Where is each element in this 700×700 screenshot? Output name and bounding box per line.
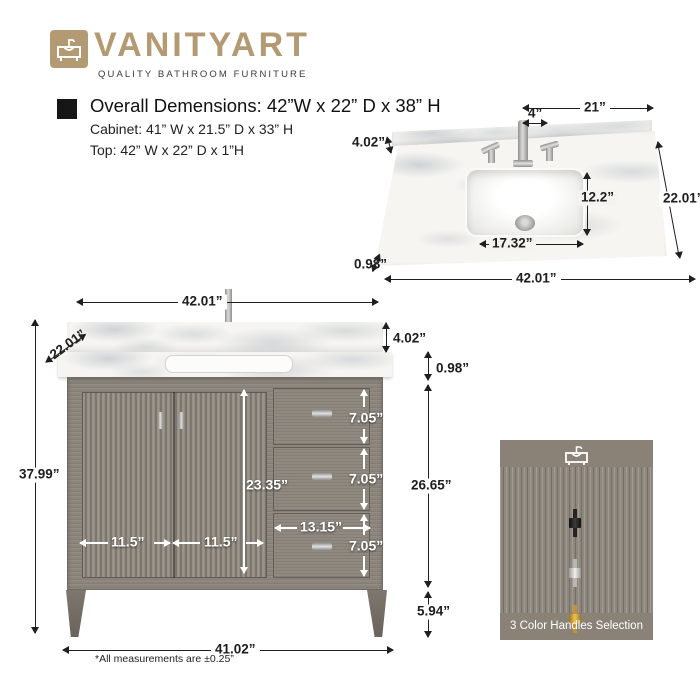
door-gap [173, 392, 175, 578]
handle-option-black [569, 509, 581, 537]
dim-label-half-width: 21” [580, 101, 610, 116]
brand-name: VANITYART [94, 26, 310, 65]
dim-label-drawer3: 7.05” [349, 538, 383, 553]
dim-line-door-right-a [173, 542, 200, 544]
dim-line-drawer2-a [363, 449, 365, 469]
product-dimension-sheet: VANITYART QUALITY BATHROOM FURNITURE Ove… [0, 0, 700, 700]
dim-line-drawer1-b [363, 429, 365, 443]
dim-label-door-right: 11.5” [204, 534, 237, 549]
dim-label-drawer-width: 13.15” [300, 519, 342, 534]
faucet-spout-base [513, 160, 533, 167]
handle-option-chrome [569, 559, 581, 587]
dim-line-drawer-width-b [343, 527, 370, 529]
vanity-icon [50, 30, 88, 68]
dim-label-sink-depth: 12.2” [578, 191, 617, 206]
dim-line-drawer2-b [363, 489, 365, 509]
dim-label-door-opening: 23.35” [246, 477, 288, 492]
dim-label-splash-height: 4.02” [352, 136, 385, 151]
brand-logo-icon [50, 30, 88, 68]
front-backsplash [67, 322, 383, 352]
handles-selection-panel: 3 Color Handles Selection [500, 440, 653, 640]
spec-bullet-square [57, 99, 77, 119]
front-sink-outline [165, 355, 293, 373]
dim-label-body-height: 26.65” [407, 479, 456, 494]
dim-label-counter-width: 42.01” [512, 272, 561, 287]
vanity-front-view: 42.01” 22.01” 4.02” 0.98” 26.65” 5.94” 3… [15, 285, 465, 685]
dim-line-drawer1-a [363, 390, 365, 407]
faucet-handle-right-post [546, 148, 553, 161]
drawer-pull-2 [312, 473, 332, 480]
spec-top-dimensions: Top: 42” W x 22” D x 1”H [90, 142, 244, 158]
panel-vanity-icon [560, 443, 593, 467]
dim-label-sink-width: 17.32” [489, 237, 536, 252]
dim-line-front-thickness [428, 352, 429, 380]
brand-tagline: QUALITY BATHROOM FURNITURE [98, 69, 307, 80]
dim-label-overall-height: 37.99” [15, 468, 64, 483]
countertop-diagram: 21” 4” 4.02” 22.01” 12.2” 17.32” 0.98” 4… [350, 88, 700, 293]
dim-label-drawer2: 7.05” [349, 471, 383, 486]
leg-left [66, 590, 86, 637]
dim-label-depth: 22.01” [659, 192, 700, 207]
dim-line-door-left-b [154, 542, 170, 544]
dim-label-front-top-width: 42.01” [178, 295, 227, 310]
sink-drain [515, 215, 535, 231]
dim-line-door-right-b [246, 542, 263, 544]
dim-line-drawer3-a [363, 515, 365, 535]
dim-line-door-opening [243, 390, 245, 573]
dim-label-leg-height: 5.94” [413, 605, 454, 620]
panel-wood-sample [500, 467, 653, 613]
faucet-handle-left-post [488, 150, 495, 163]
dim-line-front-splash [386, 323, 387, 352]
drawer-pull-1 [312, 410, 332, 417]
handles-panel-title: 3 Color Handles Selection [500, 613, 653, 640]
measurement-footnote: *All measurements are ±0.25” [95, 653, 234, 665]
dim-line-front-top-width [77, 302, 378, 303]
dim-line-faucet-spread [523, 123, 547, 124]
dim-label-door-left: 11.5” [111, 534, 144, 549]
door-pull-right [179, 412, 184, 429]
dim-line-drawer-width-a [275, 527, 297, 529]
drawer-pull-3 [312, 543, 332, 550]
dim-line-drawer3-b [363, 556, 365, 576]
spec-cabinet-dimensions: Cabinet: 41” W x 21.5” D x 33” H [90, 121, 293, 137]
leg-right [367, 590, 387, 637]
dim-label-faucet-spread: 4” [528, 107, 542, 122]
dim-line-door-left-a [80, 542, 108, 544]
dim-label-front-splash: 4.02” [393, 332, 426, 347]
dim-label-front-thickness: 0.98” [436, 362, 469, 377]
door-pull-left [158, 412, 163, 429]
dim-label-drawer1: 7.05” [349, 410, 383, 425]
